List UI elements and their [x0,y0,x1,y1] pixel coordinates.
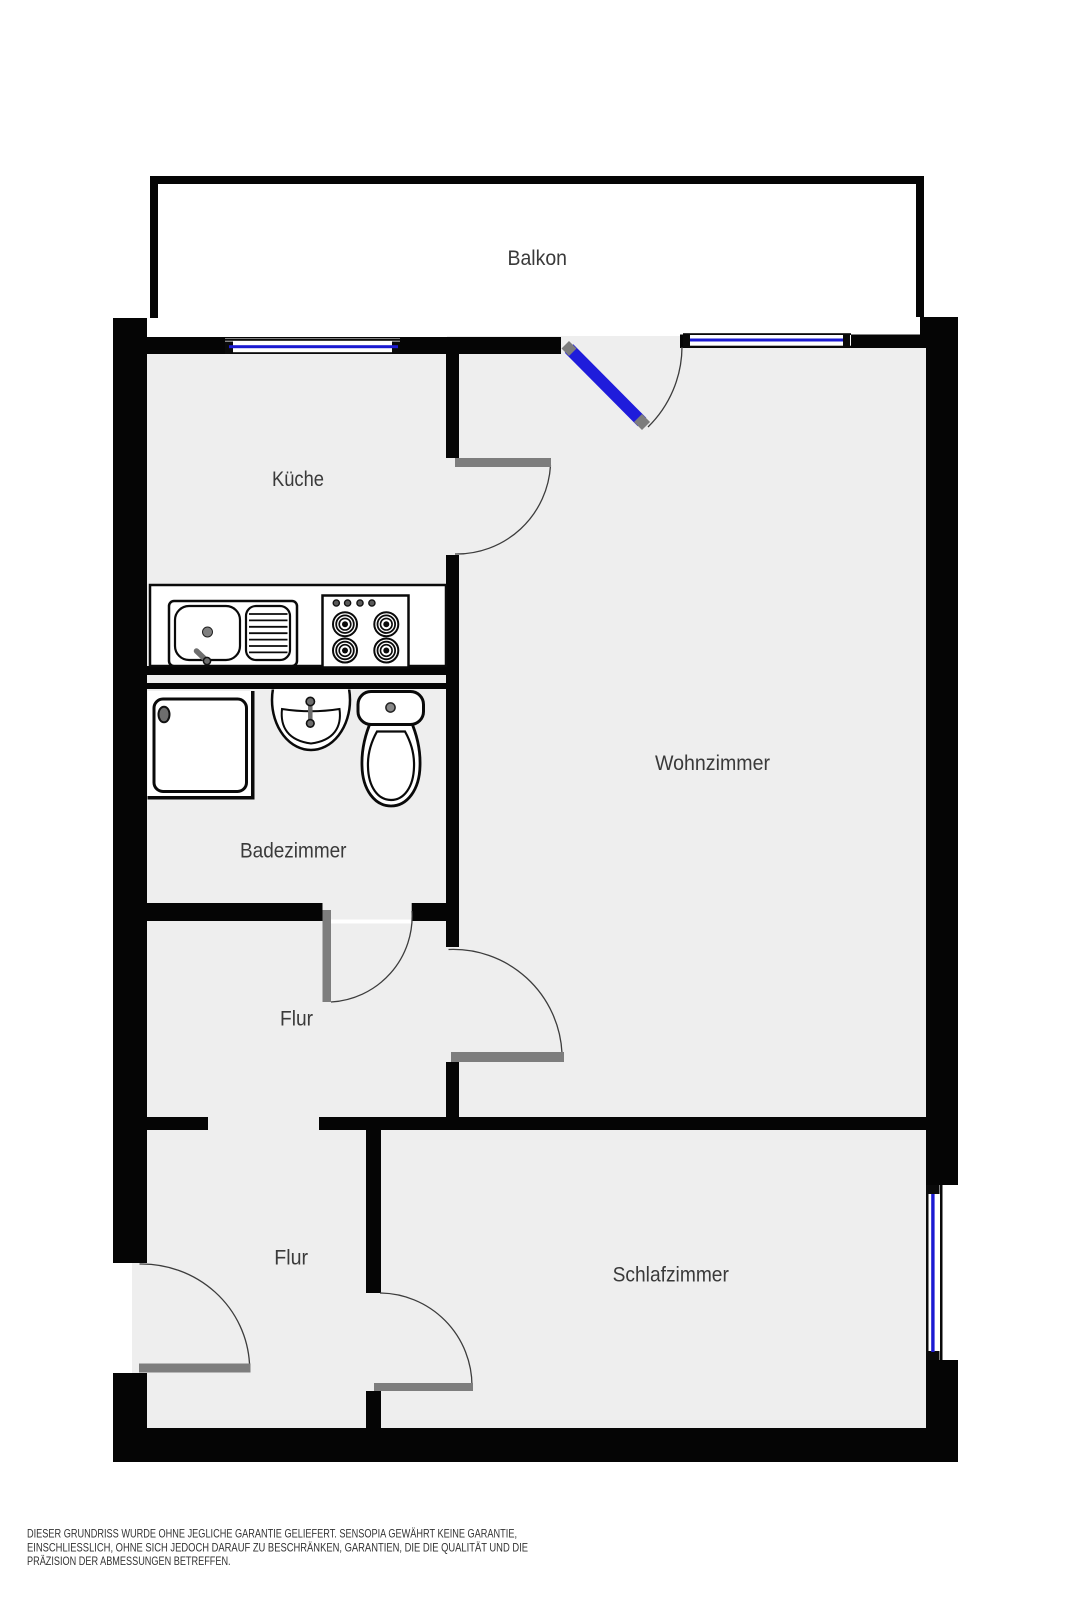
svg-text:DIESER GRUNDRISS WURDE OHNE JE: DIESER GRUNDRISS WURDE OHNE JEGLICHE GAR… [27,1528,517,1541]
svg-text:Badezimmer: Badezimmer [240,839,347,863]
svg-text:Küche: Küche [272,467,324,491]
svg-text:Flur: Flur [280,1007,313,1031]
svg-text:Schlafzimmer: Schlafzimmer [613,1262,729,1286]
svg-text:Flur: Flur [274,1246,308,1270]
svg-text:Balkon: Balkon [508,246,568,270]
svg-text:PRÄZISION DER ABMESSUNGEN BETR: PRÄZISION DER ABMESSUNGEN BETREFFEN. [27,1555,231,1568]
svg-text:EINSCHLIESSLICH, OHNE SICH JED: EINSCHLIESSLICH, OHNE SICH JEDOCH DARAUF… [27,1541,528,1554]
svg-text:Wohnzimmer: Wohnzimmer [655,751,770,775]
